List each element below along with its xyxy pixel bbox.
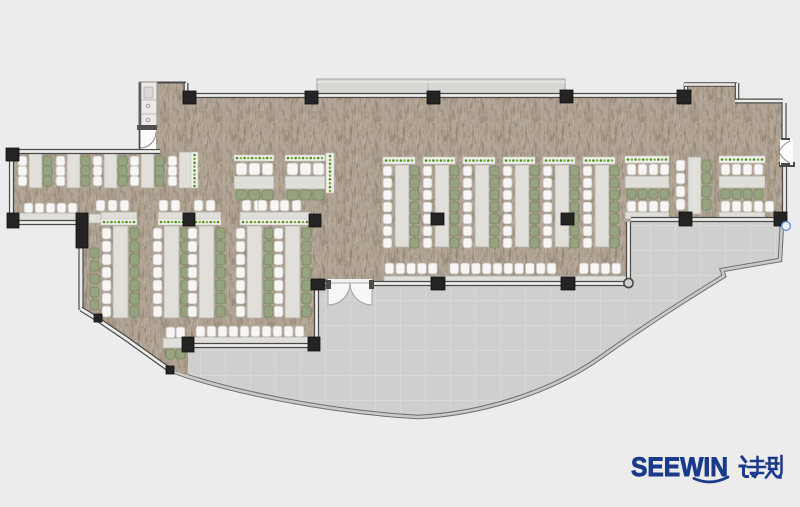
svg-text:SEEWIN: SEEWIN	[631, 452, 728, 482]
